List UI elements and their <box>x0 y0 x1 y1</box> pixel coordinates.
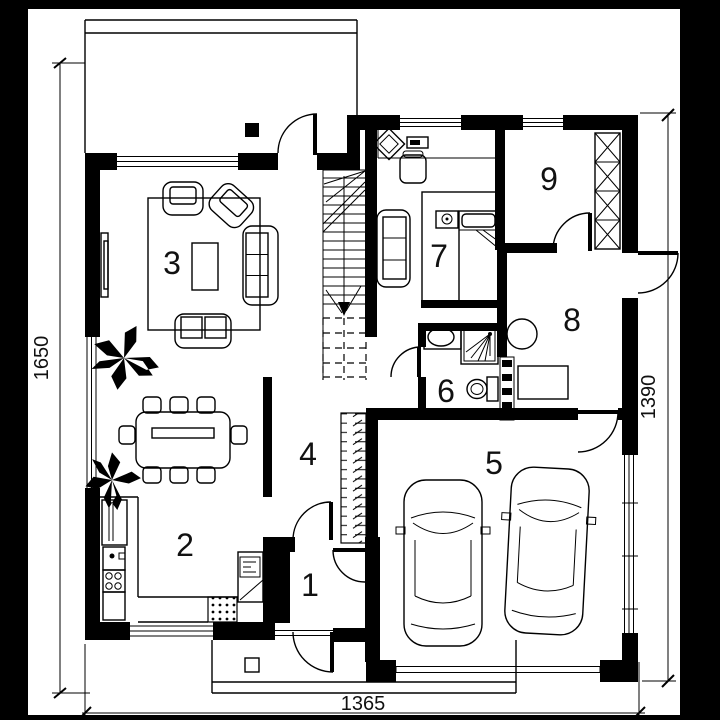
dimension-right: 1390 <box>638 109 676 687</box>
dining-chair <box>170 467 188 483</box>
cabinet <box>103 592 125 620</box>
armchair <box>205 180 257 231</box>
garage <box>396 466 598 646</box>
living-room-furniture <box>101 180 278 348</box>
closet-room-door <box>553 213 592 251</box>
bedroom-sofa <box>377 210 410 287</box>
bed <box>459 211 498 307</box>
window-closet-top <box>523 115 563 130</box>
floor-plan-page: 1 2 3 4 5 6 7 8 9 1650 1365 1390 <box>0 0 720 720</box>
desk <box>378 130 497 158</box>
room-label-6: 6 <box>437 373 455 409</box>
corner-unit <box>238 552 263 602</box>
entry-threshold <box>275 631 333 636</box>
room-label-4: 4 <box>299 436 317 472</box>
car-icon <box>496 466 599 637</box>
staircase <box>323 170 366 380</box>
toilet <box>467 377 498 401</box>
room-label-7: 7 <box>430 238 448 274</box>
entry-door <box>293 632 334 672</box>
dimension-left: 1650 <box>31 58 90 698</box>
room-label-5: 5 <box>485 445 503 481</box>
dining-chair <box>143 467 161 483</box>
dimension-left-value: 1650 <box>31 336 53 381</box>
nightstand <box>436 211 458 228</box>
window-kitchen-bottom <box>130 622 213 640</box>
dining-chair <box>170 397 188 413</box>
tech-shaft <box>208 597 237 622</box>
window-bedroom-top <box>400 115 461 130</box>
kitchen-sink <box>103 547 125 570</box>
stove <box>103 570 125 592</box>
hall-furniture <box>507 319 568 399</box>
wardrobe <box>595 133 620 249</box>
coffee-table <box>192 243 218 290</box>
image-border <box>0 0 720 720</box>
room-label-2: 2 <box>176 527 194 563</box>
loveseat <box>175 314 231 348</box>
dining-chair <box>197 467 215 483</box>
side-exit-door <box>638 251 678 293</box>
car-icon <box>396 480 490 646</box>
bathroom-door <box>391 347 421 377</box>
dimension-right-value: 1390 <box>638 375 660 420</box>
round-table <box>507 319 537 349</box>
dining-table <box>136 412 230 468</box>
cabinet <box>518 366 568 399</box>
coat-closet <box>341 413 366 543</box>
dimension-bottom-value: 1365 <box>341 693 386 715</box>
dining-set <box>119 397 247 483</box>
dining-chair <box>143 397 161 413</box>
room-label-9: 9 <box>540 161 558 197</box>
laptop <box>407 137 428 148</box>
garage-door-bottom <box>396 667 600 673</box>
doormat <box>245 658 259 672</box>
tv-cabinet <box>101 233 108 297</box>
room-label-8: 8 <box>563 302 581 338</box>
partition-stub <box>263 377 272 497</box>
dining-chair <box>197 397 215 413</box>
terrace-door <box>278 114 317 155</box>
hall-to-garage-door <box>578 410 618 452</box>
doors <box>278 114 678 672</box>
desk-chair <box>400 151 426 183</box>
fridge <box>102 500 127 545</box>
window-living-top <box>117 153 238 170</box>
window-garage-right <box>622 455 638 633</box>
dining-chair <box>231 426 247 444</box>
room-label-1: 1 <box>301 567 319 603</box>
dining-chair <box>119 426 135 444</box>
bedroom-furniture <box>373 128 500 307</box>
chimney-block <box>245 123 259 137</box>
room-label-3: 3 <box>163 245 181 281</box>
floor-plan-svg: 1 2 3 4 5 6 7 8 9 1650 1365 1390 <box>0 0 720 720</box>
shower <box>461 326 498 364</box>
